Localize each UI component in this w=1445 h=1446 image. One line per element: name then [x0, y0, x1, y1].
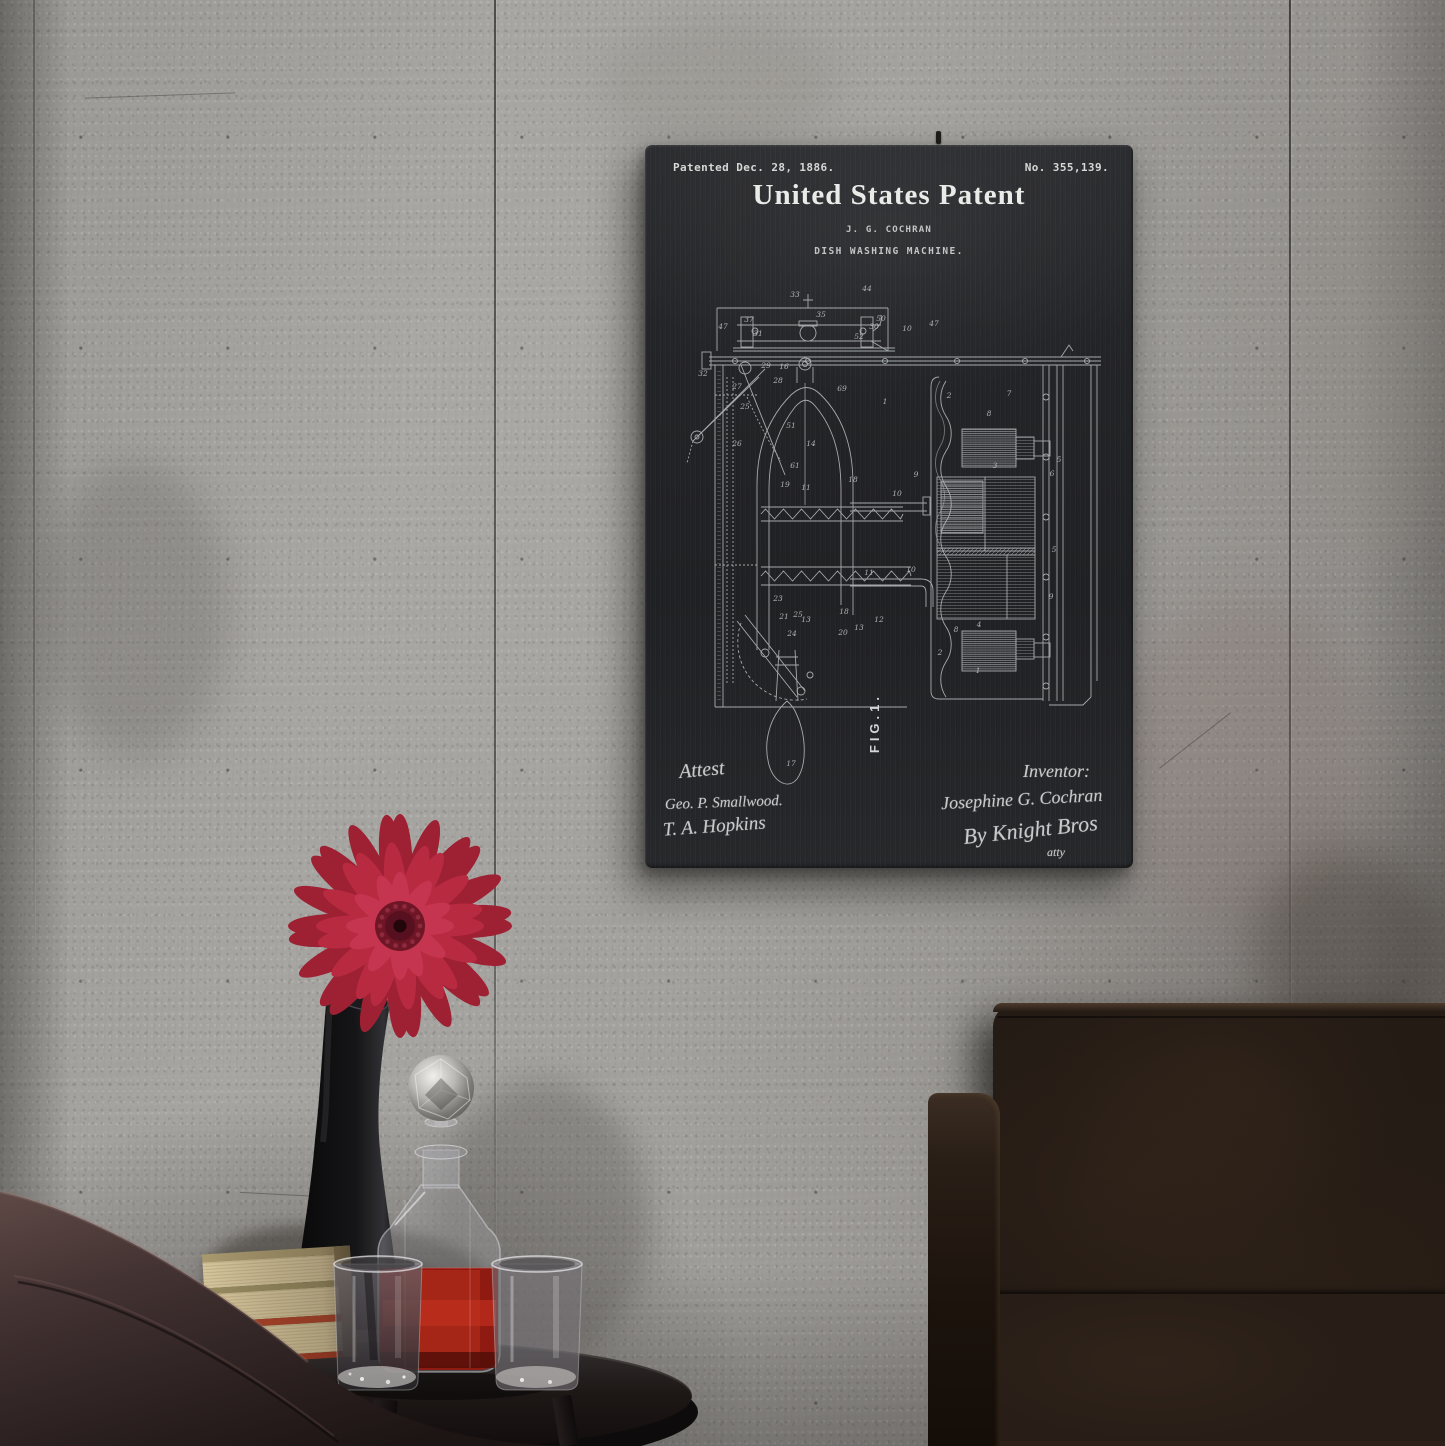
pouf-layer [0, 0, 1445, 1446]
leather-pouf [0, 1190, 568, 1446]
room-photo: Patented Dec. 28, 1886. No. 355,139. Uni… [0, 0, 1445, 1446]
